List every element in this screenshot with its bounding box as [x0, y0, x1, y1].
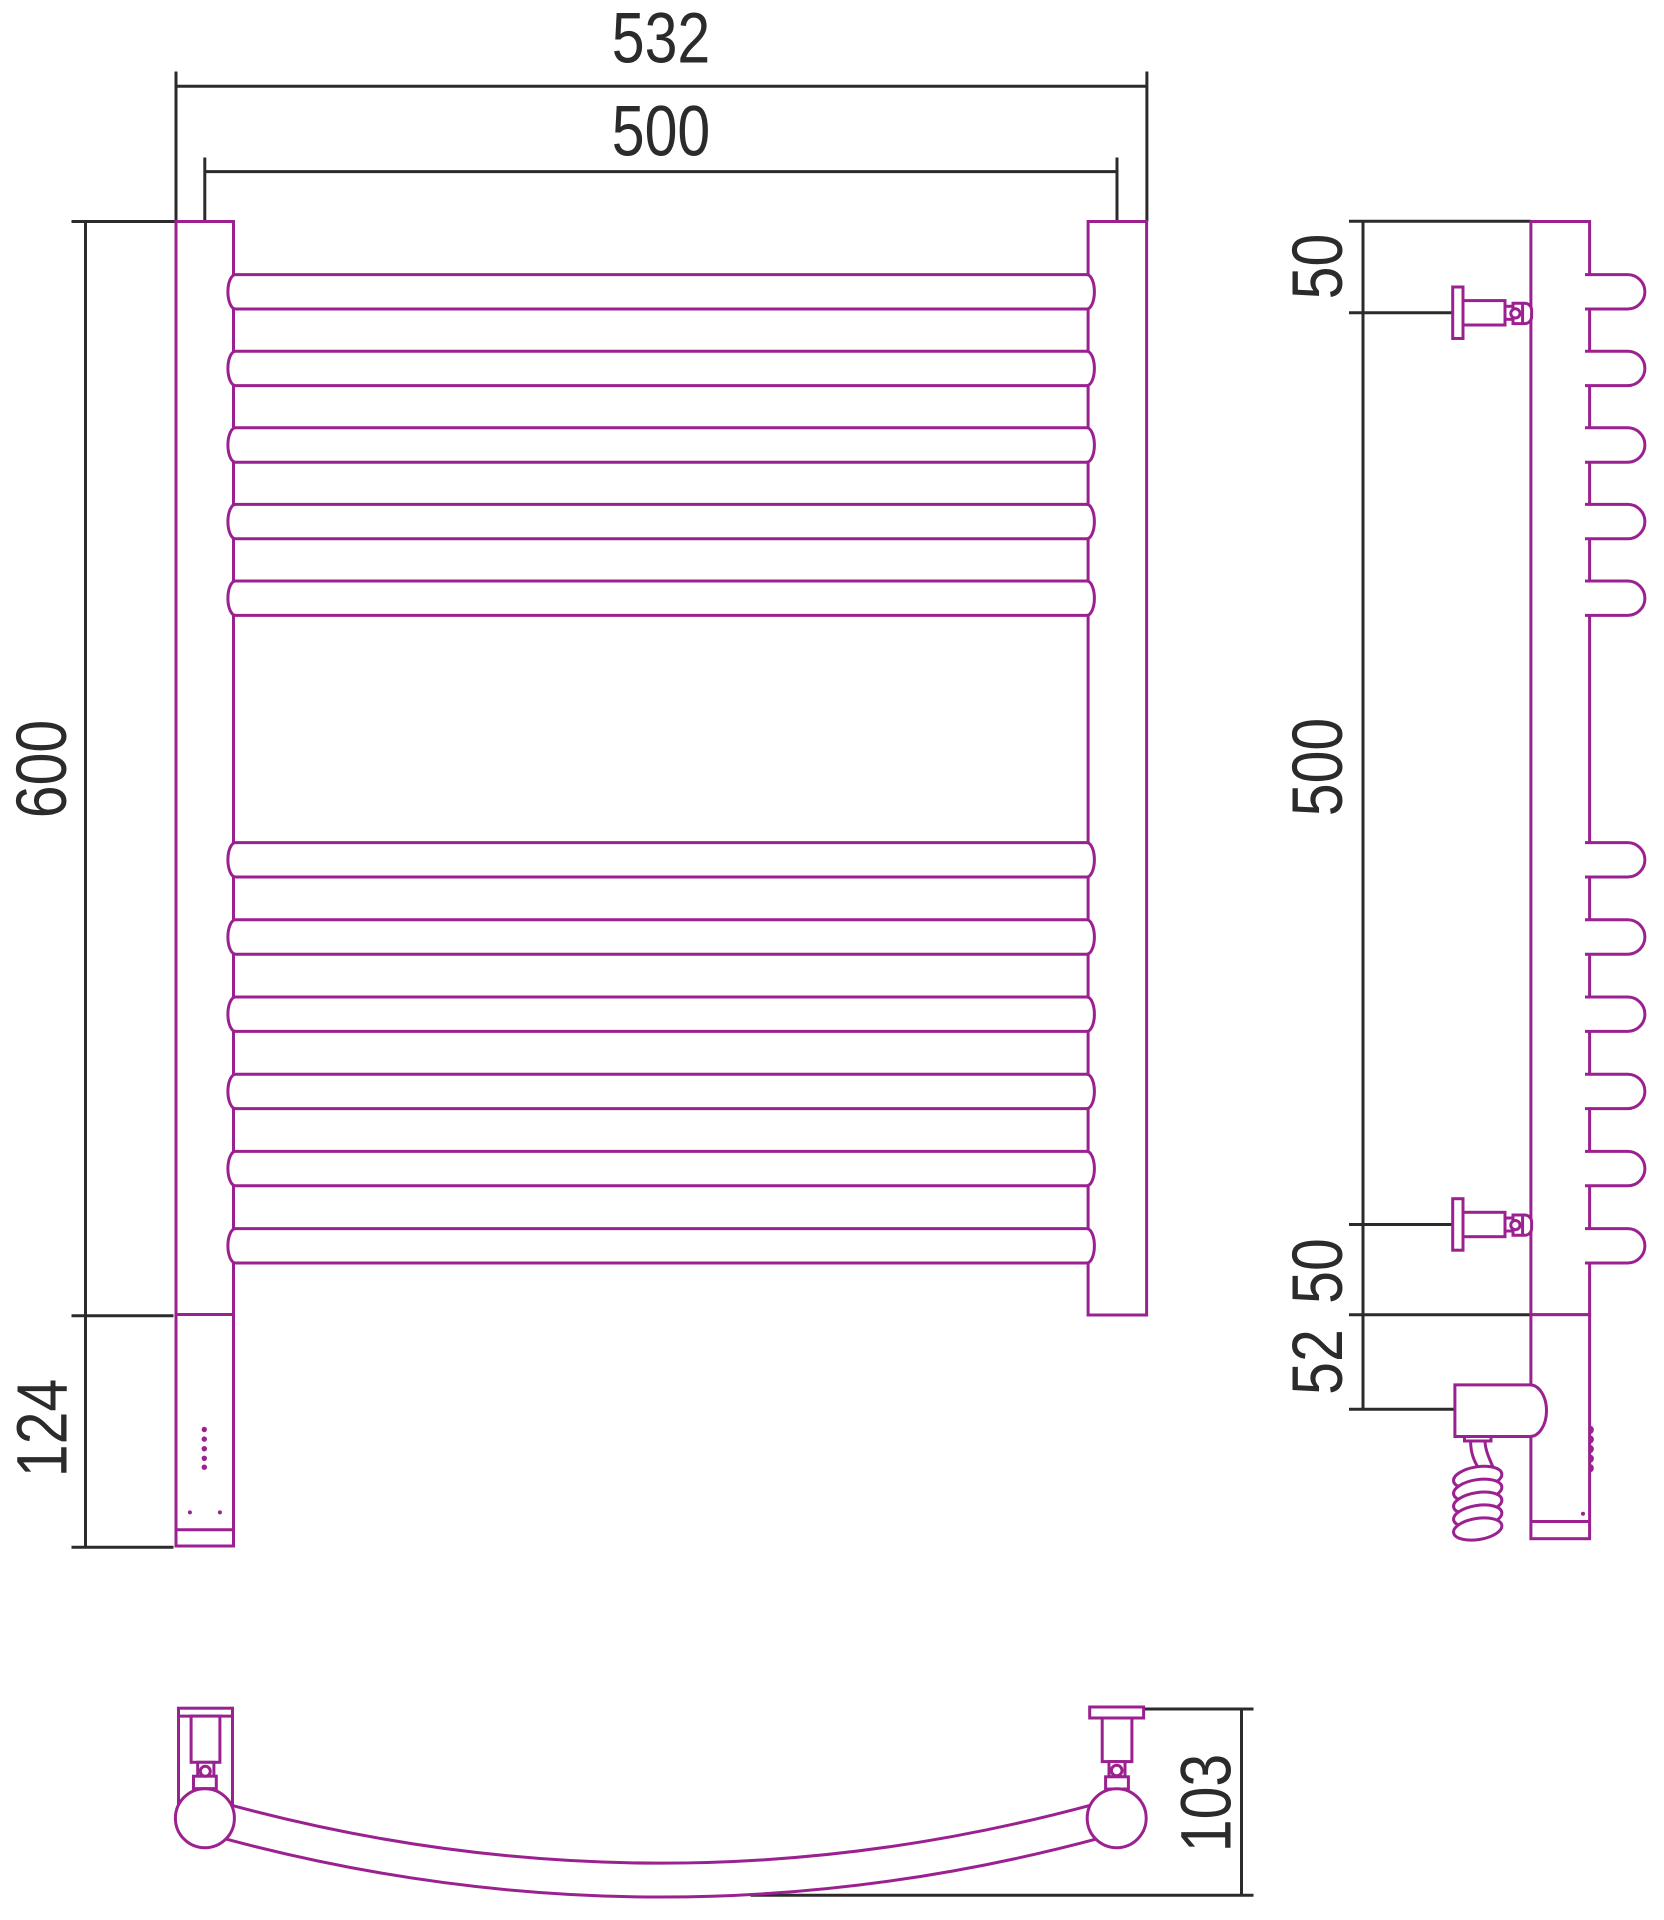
svg-text:124: 124: [2, 1379, 82, 1478]
svg-text:532: 532: [612, 0, 711, 78]
svg-text:50: 50: [1278, 234, 1358, 300]
svg-text:103: 103: [1166, 1754, 1246, 1853]
svg-text:500: 500: [612, 91, 711, 171]
svg-text:500: 500: [1278, 718, 1358, 817]
svg-text:50: 50: [1278, 1238, 1358, 1304]
svg-text:52: 52: [1278, 1329, 1358, 1395]
svg-text:600: 600: [2, 720, 82, 819]
